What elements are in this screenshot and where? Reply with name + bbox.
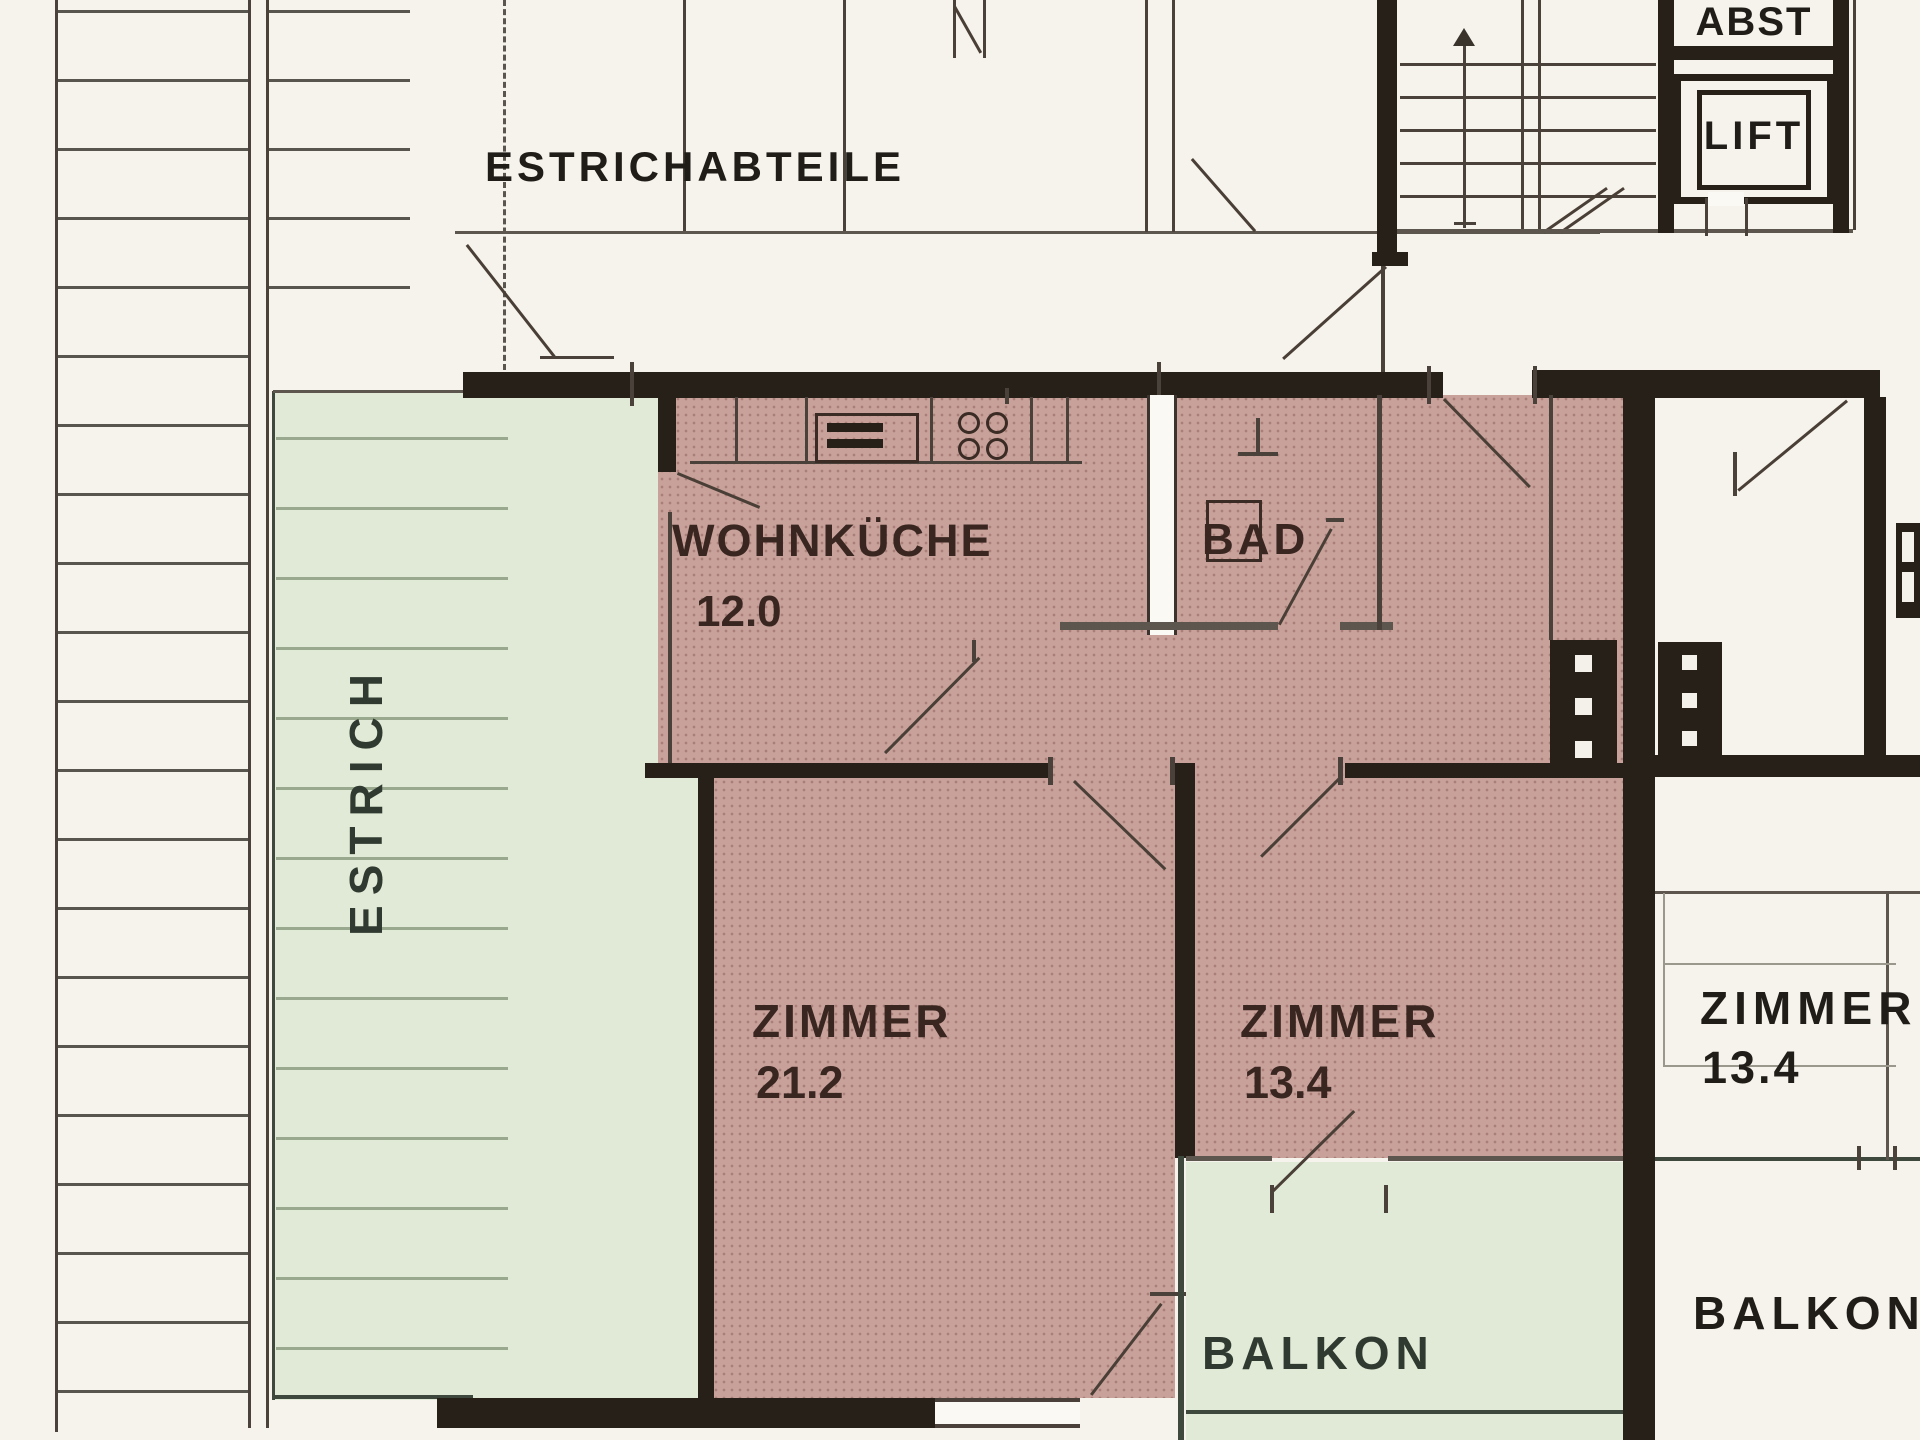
bedroom-large-label: ZIMMER [752,998,951,1044]
wall-segment [683,0,686,232]
neighbor-room-label: ZIMMER [1700,985,1917,1031]
shaft-opening [1682,731,1697,746]
wall-segment [1372,252,1408,266]
apartment-area [658,395,1623,778]
wall-segment [698,763,714,1398]
service-shaft [1550,640,1617,778]
door-jamb [1705,198,1708,236]
balcony-left-area [1186,1162,1623,1440]
lift-label: LIFT [1688,116,1820,156]
stove-burner-icon [958,438,980,460]
door-swing [1282,266,1387,360]
stair-tread [1400,162,1656,165]
stair-up-arrow-icon [1453,28,1475,46]
door-jamb [1338,757,1343,785]
wall-segment [1388,1156,1623,1161]
wall-segment [1172,0,1175,232]
wall-segment [1532,370,1880,398]
attic-hatch [276,437,508,1389]
bedroom-small-label: ZIMMER [1240,998,1439,1044]
door-jamb [1533,366,1537,404]
counter-divider [735,397,738,461]
shaft-opening [1575,655,1592,672]
door-jamb [1733,452,1737,496]
sink-basin [827,439,883,448]
wall-segment [273,390,463,393]
wall-segment [1345,763,1623,778]
wall-segment [1833,0,1849,233]
kitchen-label: WOHNKÜCHE [672,518,992,563]
roof-slope-line [1663,893,1665,1067]
neighbor-room-area-value: 13.4 [1702,1045,1802,1090]
wall-segment [1060,622,1278,630]
stove-burner-icon [986,412,1008,434]
wall-segment [463,372,1443,398]
counter-divider [930,397,933,461]
shaft-opening [1902,532,1914,562]
bedroom-small-area-value: 13.4 [1244,1060,1332,1105]
wall-segment [437,1398,935,1428]
wall-segment [658,395,676,472]
door-jamb [972,640,976,662]
attic-compartments-label: ESTRICHABTEILE [455,146,935,188]
wall-segment [248,0,251,1428]
stair-direction-line [1463,44,1466,228]
attic-compartment-grid [269,10,410,342]
entrance-door-swing [1737,400,1848,492]
wall-segment [843,0,846,232]
stair-direction-base [1454,222,1476,225]
door-threshold [1326,518,1344,522]
wall-segment [1853,0,1856,230]
basin-fixture [1256,418,1260,456]
door-jamb [1048,757,1053,785]
counter-divider [1066,397,1069,461]
wall-segment [1623,370,1655,1440]
shaft-opening [1902,572,1914,602]
service-shaft [1658,642,1722,770]
lift-door-gap [1708,192,1744,206]
stair-wall-line [1538,0,1541,230]
window-tick [630,362,634,406]
door-swing [1191,158,1256,232]
bath-label: BAD [1202,518,1309,562]
stair-break-line [1560,187,1625,234]
wall-segment [1658,46,1849,60]
window-tick [1005,388,1009,404]
door-swing [466,244,556,358]
door-jamb [1857,1146,1861,1170]
wall-segment [272,391,275,1400]
stair-break-line [1543,187,1608,234]
wall-segment [1864,397,1886,760]
shaft-opening [1575,698,1592,715]
door-jamb [1893,1146,1897,1170]
wall-segment [1186,1156,1272,1161]
sink-basin [827,423,883,432]
wall-segment [1549,395,1553,640]
bedroom-large-area-value: 21.2 [756,1060,844,1105]
door-jamb [1384,1185,1388,1213]
wall-segment [1381,266,1385,372]
shaft-opening [1682,655,1697,670]
counter-divider [805,397,808,461]
stove-burner-icon [986,438,1008,460]
stair-tread [1400,129,1656,132]
stair-tread [1400,195,1656,198]
storage-room-label: ABST [1674,2,1834,42]
bath-wall [1147,395,1177,635]
attic-open-area [658,778,698,1400]
wall-segment [983,0,986,58]
stair-tread [1400,63,1656,66]
shaft-opening [1575,741,1592,758]
shaft-opening [1682,693,1697,708]
wall-segment [1145,0,1148,232]
door-jamb [1745,198,1748,236]
stair-tread [1400,96,1656,99]
window-line [935,1424,1080,1428]
wall-segment [1175,763,1195,1158]
wall-segment [1655,1157,1920,1161]
wall-segment [1655,755,1920,777]
attic-label: ESTRICH [343,664,389,936]
door-threshold [540,356,614,359]
floor-plan: ESTRICHABTEILE ABST LIFT ESTRICH [0,0,1920,1440]
wall-segment [1655,891,1920,894]
door-swing [953,6,982,54]
landing-edge [1397,229,1853,233]
balcony-left-label: BALKON [1202,1330,1435,1376]
window-line [935,1398,1080,1402]
wall-segment [1377,395,1382,630]
balcony-railing [1186,1410,1623,1414]
sink-fixture [815,413,919,463]
counter-divider [1030,397,1033,461]
balcony-right-label: BALKON [1693,1290,1920,1336]
wall-segment [1377,0,1397,266]
wall-segment [1340,622,1393,630]
wall-segment [1178,1156,1184,1440]
service-shaft [1896,523,1920,618]
door-jamb [1427,366,1431,404]
stove-burner-icon [958,412,980,434]
stair-wall-line [1521,0,1524,230]
kitchen-area-value: 12.0 [696,590,782,634]
wall-segment [1658,0,1674,233]
roof-slope-line [1663,963,1896,965]
attic-compartment-grid [58,10,248,1430]
